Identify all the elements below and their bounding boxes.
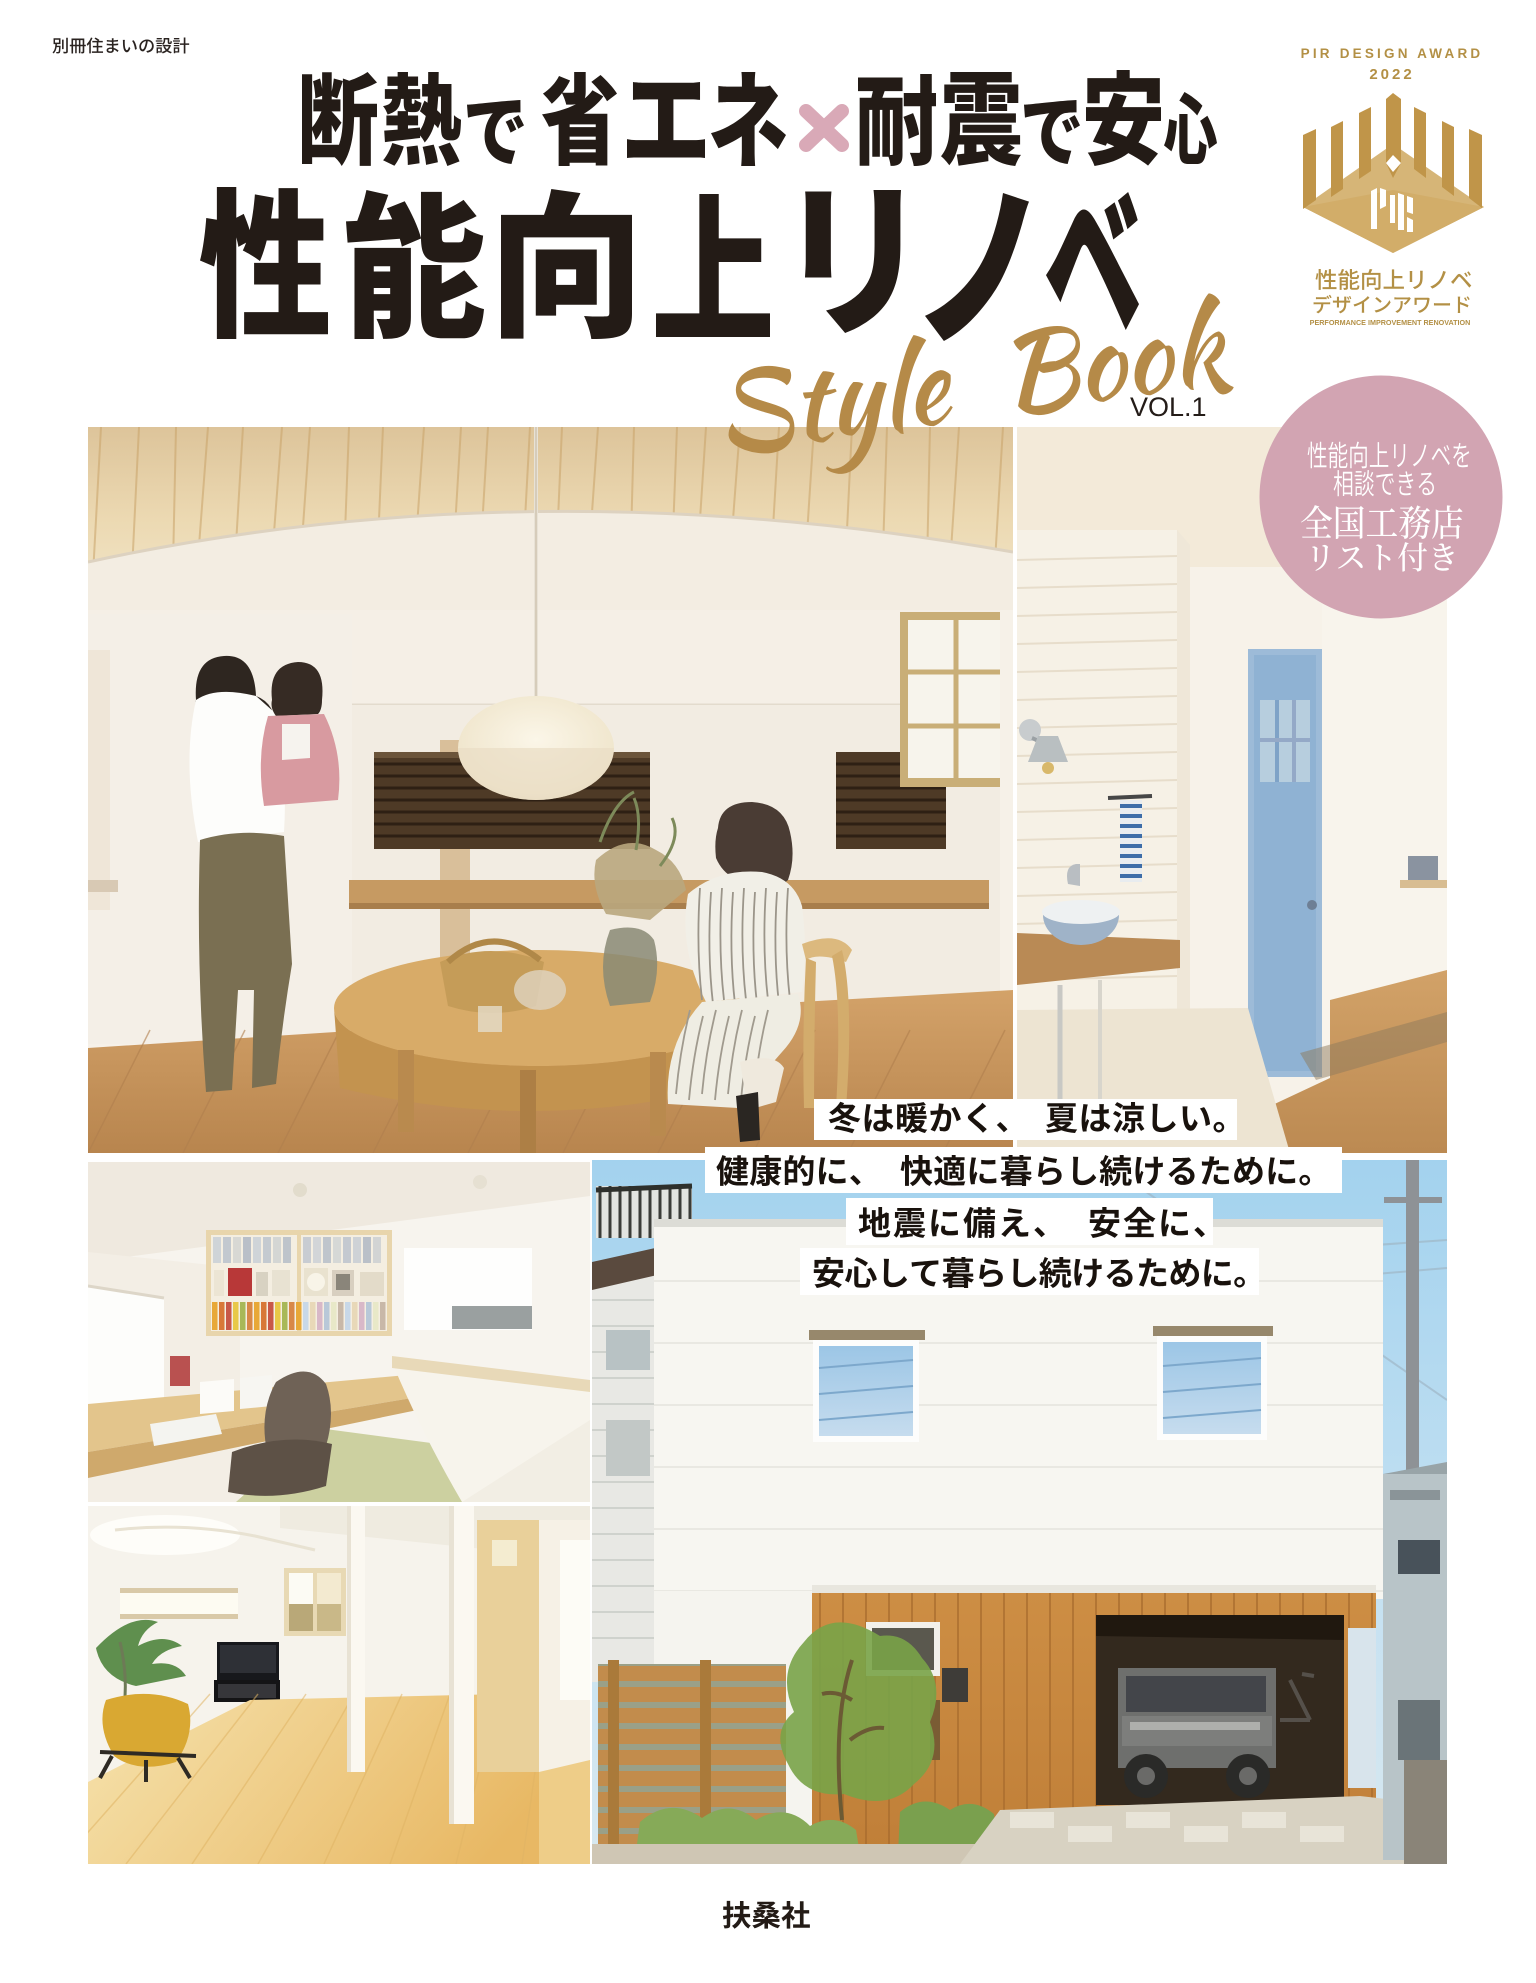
svg-text:PIR DESIGN AWARD: PIR DESIGN AWARD — [1301, 46, 1484, 61]
svg-text:VOL.1: VOL.1 — [1130, 392, 1207, 422]
svg-text:2022: 2022 — [1369, 66, 1414, 83]
svg-text:PERFORMANCE IMPROVEMENT RENOVA: PERFORMANCE IMPROVEMENT RENOVATION — [1310, 318, 1471, 327]
